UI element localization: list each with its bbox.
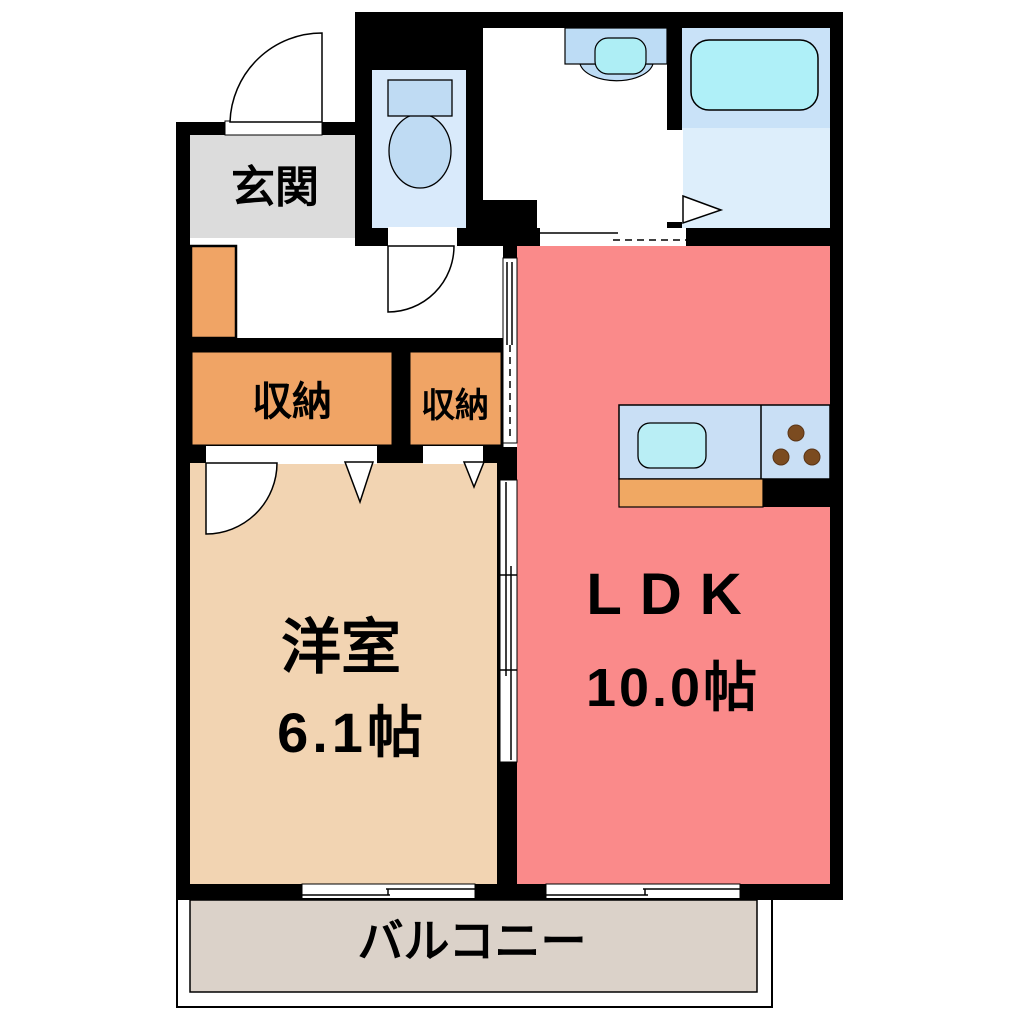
ldk-size: 10.0帖 (586, 658, 760, 718)
entrance-label: 玄関 (231, 163, 319, 212)
entrance-door-swing-arc (230, 33, 322, 122)
balcony-label: バルコニー (357, 915, 586, 967)
wall-segment (190, 338, 517, 350)
closet-right-label: 収納 (421, 387, 489, 425)
wall-segment (483, 12, 843, 28)
wall-segment (497, 463, 517, 480)
sliding-door-hallway-ldk (503, 258, 517, 443)
closet-left-label: 収納 (252, 380, 332, 424)
kitchen-cabinet (619, 479, 763, 507)
wall-segment (503, 246, 517, 258)
bathroom-door-gap (666, 130, 683, 222)
toilet-door-gap (388, 227, 457, 247)
wall-segment (483, 200, 537, 228)
wall-segment (355, 70, 372, 245)
sliding-door-western-room-ldk (500, 480, 517, 762)
kitchen-sink-icon (638, 423, 706, 468)
window-western-room (302, 884, 475, 900)
wall-segment (176, 884, 843, 900)
entrance-door-sill (225, 121, 322, 135)
floor-plan-svg: 玄関 収納 収納 洋室 6.1帖 LDK 10.0帖 バルコニー (0, 0, 1020, 1020)
wall-segment (355, 12, 483, 70)
window-ldk (546, 884, 740, 900)
ldk-label: LDK (586, 562, 759, 627)
bathtub-icon (691, 40, 818, 110)
wall-segment (394, 350, 408, 447)
wall-segment (497, 762, 517, 884)
toilet-icon (388, 80, 452, 188)
floor-plan-page: 玄関 収納 収納 洋室 6.1帖 LDK 10.0帖 バルコニー (0, 0, 1020, 1020)
sliding-door-washroom-ldk (540, 228, 686, 246)
wall-segment (830, 12, 843, 900)
western-room-label: 洋室 (281, 614, 401, 681)
wall-segment (763, 479, 830, 507)
wall-segment (176, 122, 190, 900)
wall-segment (466, 12, 483, 230)
western-room-size: 6.1帖 (277, 701, 427, 764)
shoe-cabinet (191, 246, 236, 338)
